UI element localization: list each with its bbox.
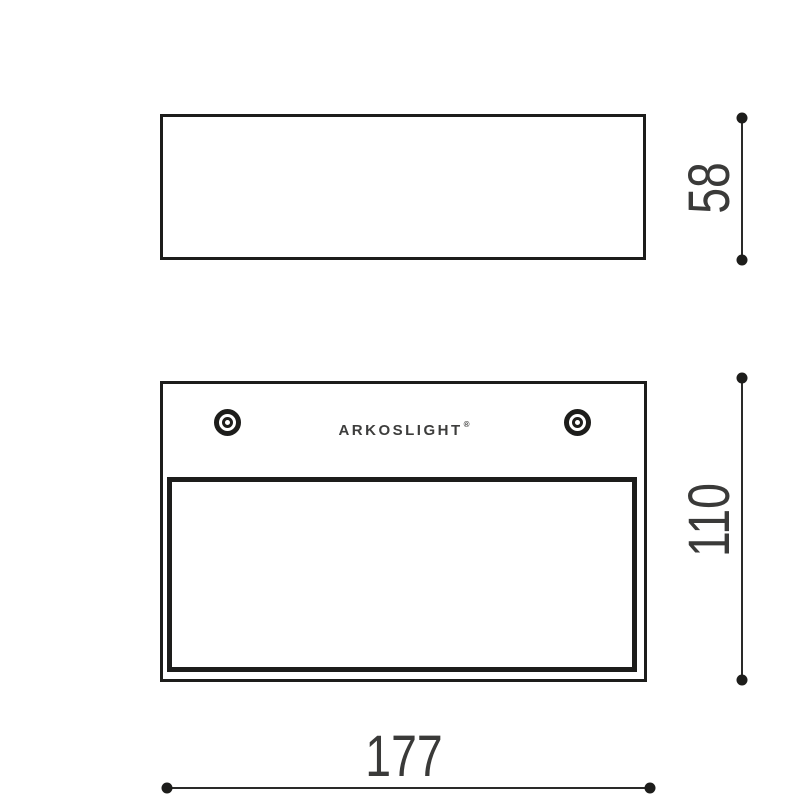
technical-drawing: 58 ARKOSLIGHT® 110 177 bbox=[0, 0, 800, 800]
dimension-endpoint-dot bbox=[737, 675, 748, 686]
brand-name: ARKOSLIGHT bbox=[338, 422, 462, 439]
light-panel-outline bbox=[167, 477, 637, 672]
dimension-label-side-height: 58 bbox=[681, 162, 739, 214]
side-view-outline bbox=[160, 114, 646, 260]
brand-logo: ARKOSLIGHT® bbox=[160, 419, 647, 439]
registered-mark-icon: ® bbox=[464, 420, 470, 429]
dimension-endpoint-dot bbox=[737, 113, 748, 124]
dimension-endpoint-dot bbox=[737, 373, 748, 384]
dimension-label-front-height: 110 bbox=[681, 483, 739, 557]
dimension-endpoint-dot bbox=[645, 783, 656, 794]
dimension-endpoint-dot bbox=[737, 255, 748, 266]
dimension-label-front-width: 177 bbox=[365, 728, 442, 786]
dimension-endpoint-dot bbox=[162, 783, 173, 794]
